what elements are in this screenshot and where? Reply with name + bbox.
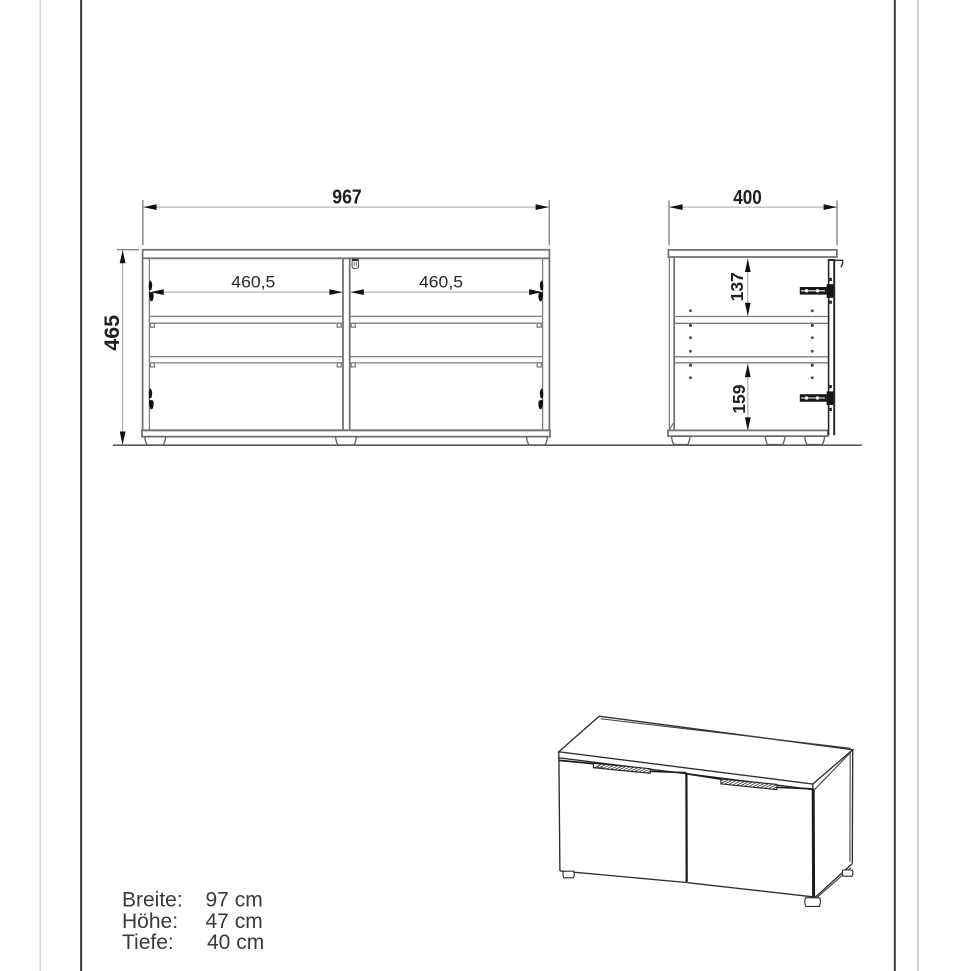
- svg-text:47 cm: 47 cm: [206, 910, 263, 933]
- svg-text:Höhe:: Höhe:: [122, 910, 178, 933]
- svg-text:400: 400: [733, 187, 762, 209]
- svg-text:137: 137: [727, 272, 747, 301]
- svg-text:967: 967: [332, 187, 362, 209]
- svg-text:Tiefe:: Tiefe:: [122, 931, 174, 954]
- svg-text:40 cm: 40 cm: [207, 931, 264, 954]
- svg-text:Breite:: Breite:: [122, 889, 183, 912]
- svg-text:159: 159: [729, 384, 749, 413]
- svg-text:97 cm: 97 cm: [206, 889, 263, 912]
- svg-text:460,5: 460,5: [419, 273, 463, 292]
- svg-text:465: 465: [100, 315, 124, 351]
- svg-text:460,5: 460,5: [231, 273, 275, 292]
